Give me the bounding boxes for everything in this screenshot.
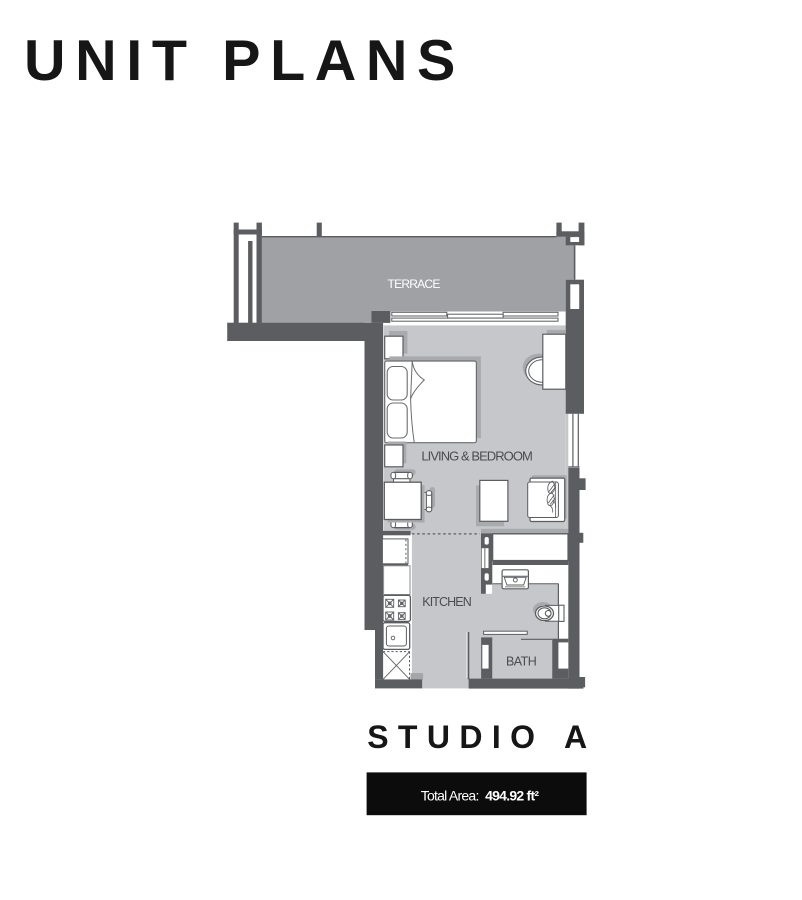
svg-text:BATH: BATH xyxy=(506,655,537,669)
svg-text:UNIT PLANS: UNIT PLANS xyxy=(24,29,465,93)
svg-text:LIVING & BEDROOM: LIVING & BEDROOM xyxy=(421,449,532,464)
svg-text:STUDIOA: STUDIOA xyxy=(367,719,587,755)
svg-text:TERRACE: TERRACE xyxy=(388,277,441,291)
svg-text:KITCHEN: KITCHEN xyxy=(422,595,471,609)
